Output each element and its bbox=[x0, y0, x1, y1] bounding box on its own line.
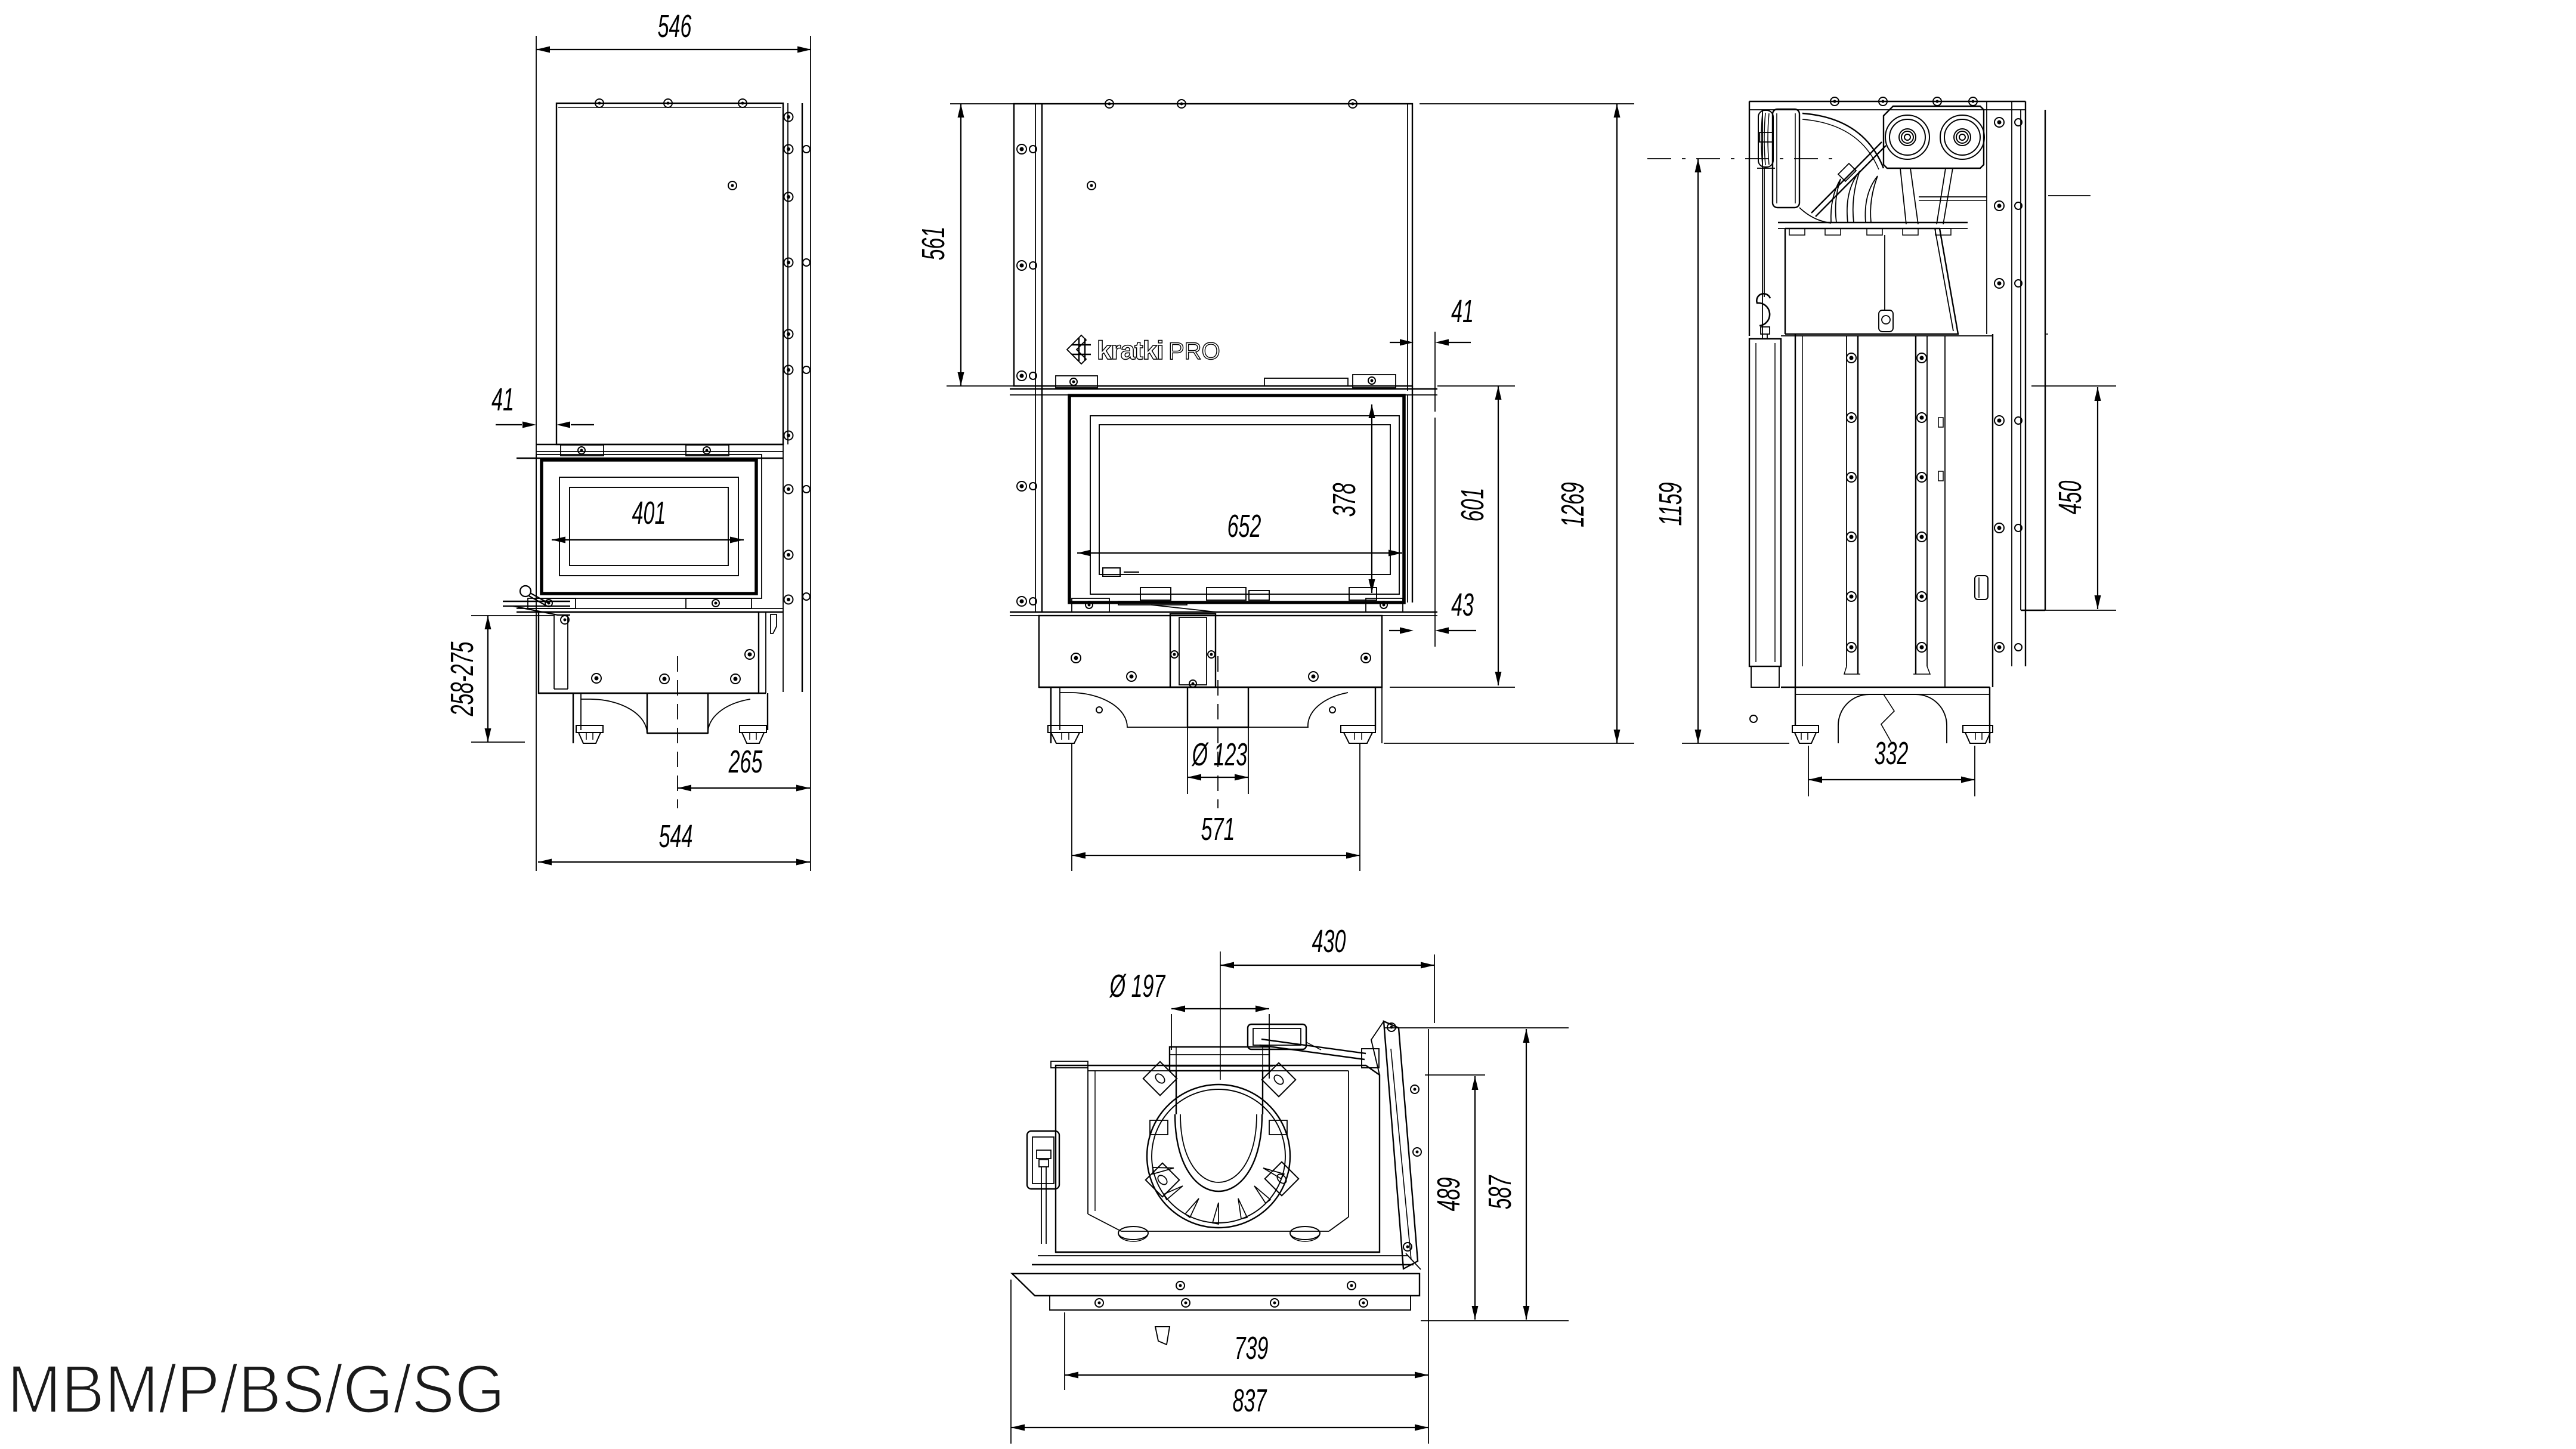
svg-text:587: 587 bbox=[1482, 1175, 1518, 1209]
svg-text:571: 571 bbox=[1201, 811, 1235, 847]
svg-text:41: 41 bbox=[491, 381, 514, 418]
svg-text:601: 601 bbox=[1454, 488, 1490, 522]
svg-text:265: 265 bbox=[728, 743, 763, 780]
svg-text:739: 739 bbox=[1235, 1330, 1269, 1366]
svg-text:Ø 197: Ø 197 bbox=[1109, 968, 1166, 1004]
svg-text:561: 561 bbox=[915, 227, 951, 261]
svg-text:546: 546 bbox=[658, 8, 692, 44]
svg-text:652: 652 bbox=[1227, 508, 1261, 544]
svg-text:450: 450 bbox=[2052, 481, 2088, 515]
svg-text:430: 430 bbox=[1312, 923, 1346, 959]
svg-text:41: 41 bbox=[1451, 293, 1474, 329]
svg-text:378: 378 bbox=[1326, 483, 1362, 517]
svg-text:kratki: kratki bbox=[1097, 336, 1163, 365]
svg-text:MBM/P/BS/G/SG: MBM/P/BS/G/SG bbox=[7, 1352, 505, 1428]
svg-text:489: 489 bbox=[1430, 1178, 1467, 1212]
svg-text:Ø 123: Ø 123 bbox=[1191, 736, 1247, 773]
svg-text:PRO: PRO bbox=[1168, 338, 1220, 364]
svg-text:1159: 1159 bbox=[1652, 482, 1689, 526]
svg-text:332: 332 bbox=[1875, 735, 1909, 771]
svg-text:401: 401 bbox=[632, 495, 666, 531]
svg-text:1269: 1269 bbox=[1554, 482, 1591, 527]
svg-text:258-275: 258-275 bbox=[444, 641, 480, 716]
svg-text:43: 43 bbox=[1451, 586, 1474, 623]
svg-text:837: 837 bbox=[1233, 1382, 1267, 1419]
svg-text:544: 544 bbox=[659, 818, 693, 854]
